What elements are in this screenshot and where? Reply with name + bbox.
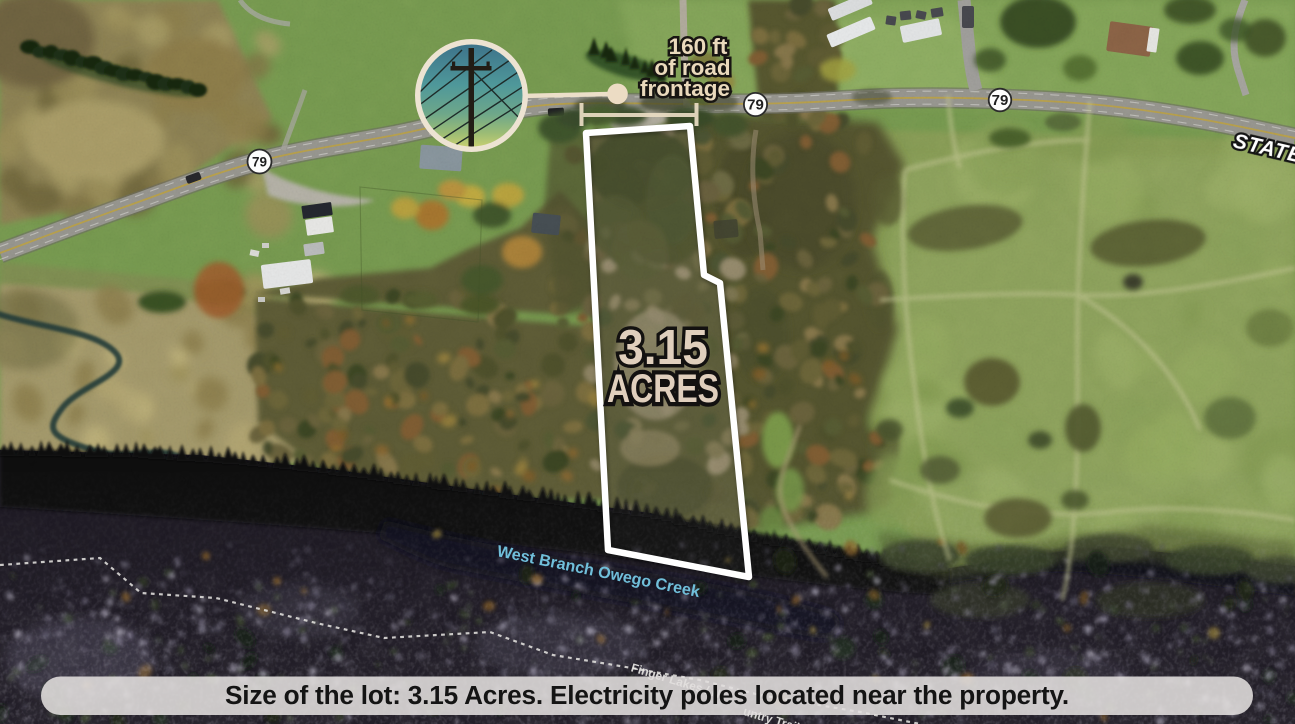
svg-text:79: 79 [747, 97, 764, 114]
svg-text:Size of the lot: 3.15 Acres. E: Size of the lot: 3.15 Acres. Electricity… [225, 680, 1069, 710]
svg-text:79: 79 [992, 92, 1009, 109]
svg-text:frontage: frontage [640, 76, 730, 101]
svg-text:ACRES: ACRES [607, 366, 719, 411]
svg-text:79: 79 [252, 155, 267, 170]
